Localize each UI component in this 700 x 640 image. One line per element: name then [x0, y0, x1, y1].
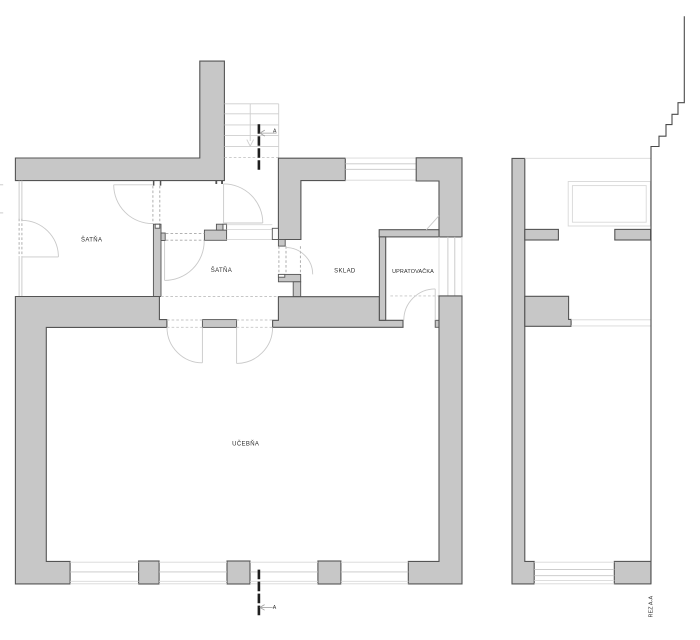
svg-text:A: A — [273, 605, 277, 611]
svg-text:ŠATŇA: ŠATŇA — [81, 237, 102, 244]
svg-text:UČEBŇA: UČEBŇA — [232, 441, 259, 448]
svg-text:REZ A-A: REZ A-A — [649, 596, 655, 618]
svg-text:SKLAD: SKLAD — [334, 268, 356, 274]
svg-text:UPRATOVAČKA: UPRATOVAČKA — [392, 268, 434, 275]
svg-text:A: A — [273, 129, 277, 135]
svg-text:ŠATŇA: ŠATŇA — [211, 267, 232, 274]
